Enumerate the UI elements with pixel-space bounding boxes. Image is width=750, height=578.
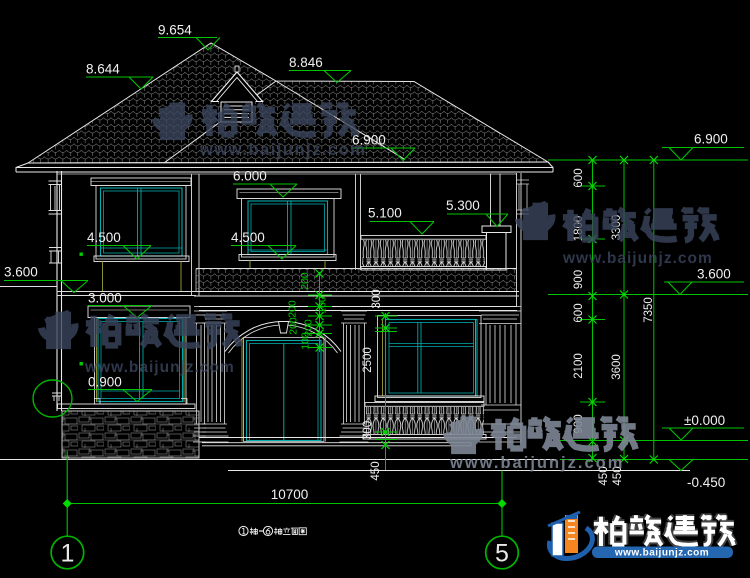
svg-text:6.900: 6.900 bbox=[694, 132, 728, 147]
svg-text:600: 600 bbox=[573, 168, 585, 187]
svg-text:9.654: 9.654 bbox=[158, 23, 192, 38]
svg-text:2100: 2100 bbox=[573, 353, 585, 379]
svg-text:www.baijunjz.com: www.baijunjz.com bbox=[614, 548, 709, 559]
svg-text:www.baijunjz.com: www.baijunjz.com bbox=[84, 359, 235, 376]
svg-text:100: 100 bbox=[317, 296, 329, 314]
svg-text:2500: 2500 bbox=[362, 347, 374, 373]
svg-text:www.baijunjz.com: www.baijunjz.com bbox=[562, 250, 713, 267]
svg-text:1: 1 bbox=[60, 540, 74, 568]
svg-text:www.baijunjz.com: www.baijunjz.com bbox=[449, 454, 624, 472]
svg-text:±0.000: ±0.000 bbox=[684, 413, 725, 428]
svg-text:7350: 7350 bbox=[643, 297, 655, 323]
svg-text:3.600: 3.600 bbox=[4, 265, 38, 280]
svg-text:200: 200 bbox=[288, 317, 300, 335]
svg-text:300: 300 bbox=[362, 421, 374, 440]
svg-text:www.baijunjz.com: www.baijunjz.com bbox=[199, 141, 366, 159]
svg-text:450: 450 bbox=[370, 461, 382, 480]
svg-text:100: 100 bbox=[300, 332, 312, 350]
svg-text:600: 600 bbox=[573, 303, 585, 322]
svg-text:4.500: 4.500 bbox=[231, 230, 265, 245]
svg-text:6.000: 6.000 bbox=[233, 169, 267, 184]
svg-text:300: 300 bbox=[371, 289, 383, 308]
svg-text:200: 200 bbox=[299, 272, 311, 290]
svg-text:3600: 3600 bbox=[611, 354, 623, 380]
svg-text:10700: 10700 bbox=[271, 487, 309, 502]
svg-text:3.000: 3.000 bbox=[88, 291, 122, 306]
svg-text:8.644: 8.644 bbox=[86, 62, 120, 77]
svg-text:200: 200 bbox=[287, 300, 299, 318]
svg-text:-0.450: -0.450 bbox=[687, 475, 725, 490]
svg-text:0.900: 0.900 bbox=[88, 375, 122, 390]
svg-text:900: 900 bbox=[573, 270, 585, 289]
svg-text:3.600: 3.600 bbox=[697, 267, 731, 282]
svg-text:5.100: 5.100 bbox=[368, 206, 402, 221]
svg-text:4.500: 4.500 bbox=[87, 230, 121, 245]
svg-text:5: 5 bbox=[495, 540, 509, 568]
svg-text:5.300: 5.300 bbox=[446, 198, 480, 213]
svg-text:8.846: 8.846 bbox=[289, 55, 323, 70]
